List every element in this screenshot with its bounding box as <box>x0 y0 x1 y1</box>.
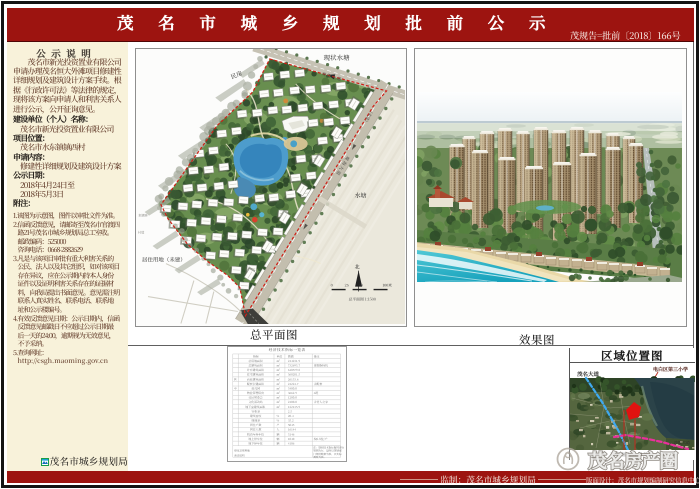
svg-text:16144: 16144 <box>288 428 296 432</box>
svg-text:单位: 单位 <box>277 354 283 358</box>
svg-text:5045: 5045 <box>288 423 295 427</box>
svg-text:1040: 1040 <box>288 437 295 441</box>
svg-text:备注: 备注 <box>314 354 320 358</box>
svg-text:居住人数: 居住人数 <box>250 428 262 432</box>
svg-text:m²: m² <box>277 368 281 372</box>
svg-text:25: 25 <box>344 284 348 289</box>
svg-text:商业建筑面积: 商业建筑面积 <box>247 377 264 381</box>
svg-text:其: 其 <box>234 377 237 381</box>
svg-text:居住用地（未建）: 居住用地（未建） <box>141 256 185 264</box>
svg-text:2.5: 2.5 <box>288 409 293 413</box>
svg-text:100米: 100米 <box>382 283 392 289</box>
svg-text:绿化景观用地: 绿化景观用地 <box>235 448 251 452</box>
svg-text:辆: 辆 <box>277 432 280 436</box>
svg-text:居住户数: 居住户数 <box>250 423 262 427</box>
svg-text:建筑密度: 建筑密度 <box>250 414 262 418</box>
svg-text:按0.8位/户: 按0.8位/户 <box>314 437 328 441</box>
svg-text:2400.0: 2400.0 <box>288 400 297 404</box>
svg-text:m²: m² <box>277 372 281 376</box>
svg-text:社区居委会: 社区居委会 <box>249 395 263 399</box>
svg-text:244231.9: 244231.9 <box>288 359 301 363</box>
svg-text:辆: 辆 <box>277 437 280 441</box>
svg-text:绿地率: 绿地率 <box>252 418 261 422</box>
svg-text:茂名房产圈: 茂名房产圈 <box>588 447 678 474</box>
svg-text:m²: m² <box>277 382 281 386</box>
svg-text:m²: m² <box>277 391 281 395</box>
svg-text:现状水塘: 现状水塘 <box>323 53 349 62</box>
svg-text:总用地面积: 总用地面积 <box>249 359 263 363</box>
svg-text:水塘: 水塘 <box>354 191 366 200</box>
svg-text:732695.7: 732695.7 <box>288 363 301 367</box>
svg-text:幼儿园: 幼儿园 <box>252 386 261 390</box>
svg-text:机动车停车位: 机动车停车位 <box>247 432 264 436</box>
svg-text:龙湖路: 龙湖路 <box>137 213 147 218</box>
svg-text:物业管理用房: 物业管理用房 <box>247 391 264 395</box>
svg-text:含老人之家: 含老人之家 <box>314 400 328 404</box>
svg-text:总建筑面积: 总建筑面积 <box>249 363 263 367</box>
svg-text:含配套: 含配套 <box>314 382 323 386</box>
svg-text:户: 户 <box>277 423 280 427</box>
svg-text:35.2: 35.2 <box>288 418 294 422</box>
svg-text:m²: m² <box>277 363 281 367</box>
svg-text:4106: 4106 <box>288 441 295 445</box>
svg-text:6班: 6班 <box>314 391 319 395</box>
svg-text:24224.7: 24224.7 <box>288 382 299 386</box>
svg-text:3662.9: 3662.9 <box>288 391 297 395</box>
svg-text:%: % <box>277 414 280 418</box>
svg-text:配套公建面积: 配套公建面积 <box>247 382 264 386</box>
svg-text:地上停车位: 地上停车位 <box>249 437 263 441</box>
svg-text:26153.6: 26153.6 <box>288 377 299 381</box>
svg-text:5146: 5146 <box>288 432 295 436</box>
svg-text:中: 中 <box>234 386 237 390</box>
svg-text:50: 50 <box>358 284 362 289</box>
svg-text:%: % <box>277 418 280 422</box>
svg-text:5400.0: 5400.0 <box>288 386 297 390</box>
svg-text:1200.0: 1200.0 <box>288 395 297 399</box>
svg-text:北: 北 <box>354 264 359 271</box>
svg-text:m²: m² <box>277 405 281 409</box>
svg-text:人: 人 <box>277 428 280 432</box>
svg-text:指标: 指标 <box>253 354 259 358</box>
svg-text:560201.5: 560201.5 <box>288 372 301 376</box>
svg-text:m²: m² <box>277 395 281 399</box>
svg-text:容积率: 容积率 <box>252 409 261 413</box>
svg-text:数值: 数值 <box>288 354 294 358</box>
svg-text:备注说明: 备注说明 <box>235 453 246 457</box>
svg-text:民房: 民房 <box>229 68 243 81</box>
svg-text:规划指标按: 规划指标按 <box>314 363 328 367</box>
svg-text:0: 0 <box>330 284 332 289</box>
svg-text:610579.8: 610579.8 <box>288 368 301 372</box>
svg-text:m²: m² <box>277 400 281 404</box>
svg-text:地下停车位: 地下停车位 <box>249 441 263 445</box>
svg-text:122115.9: 122115.9 <box>288 405 301 409</box>
svg-text:m²: m² <box>277 386 281 390</box>
svg-text:文化活动站: 文化活动站 <box>249 400 263 404</box>
svg-text:住宅建筑面积: 住宅建筑面积 <box>247 372 264 376</box>
svg-text:测绘为准。: 测绘为准。 <box>314 455 327 459</box>
svg-text:20.4: 20.4 <box>288 414 294 418</box>
svg-text:辆: 辆 <box>277 441 280 445</box>
svg-text:m²: m² <box>277 359 281 363</box>
svg-text:地下室建筑面积: 地下室建筑面积 <box>246 405 266 409</box>
svg-text:m²: m² <box>277 377 281 381</box>
svg-text:计容建筑面积: 计容建筑面积 <box>247 368 264 372</box>
svg-text:村道: 村道 <box>137 230 144 235</box>
svg-text:总平面图 1:1500: 总平面图 1:1500 <box>348 297 375 303</box>
